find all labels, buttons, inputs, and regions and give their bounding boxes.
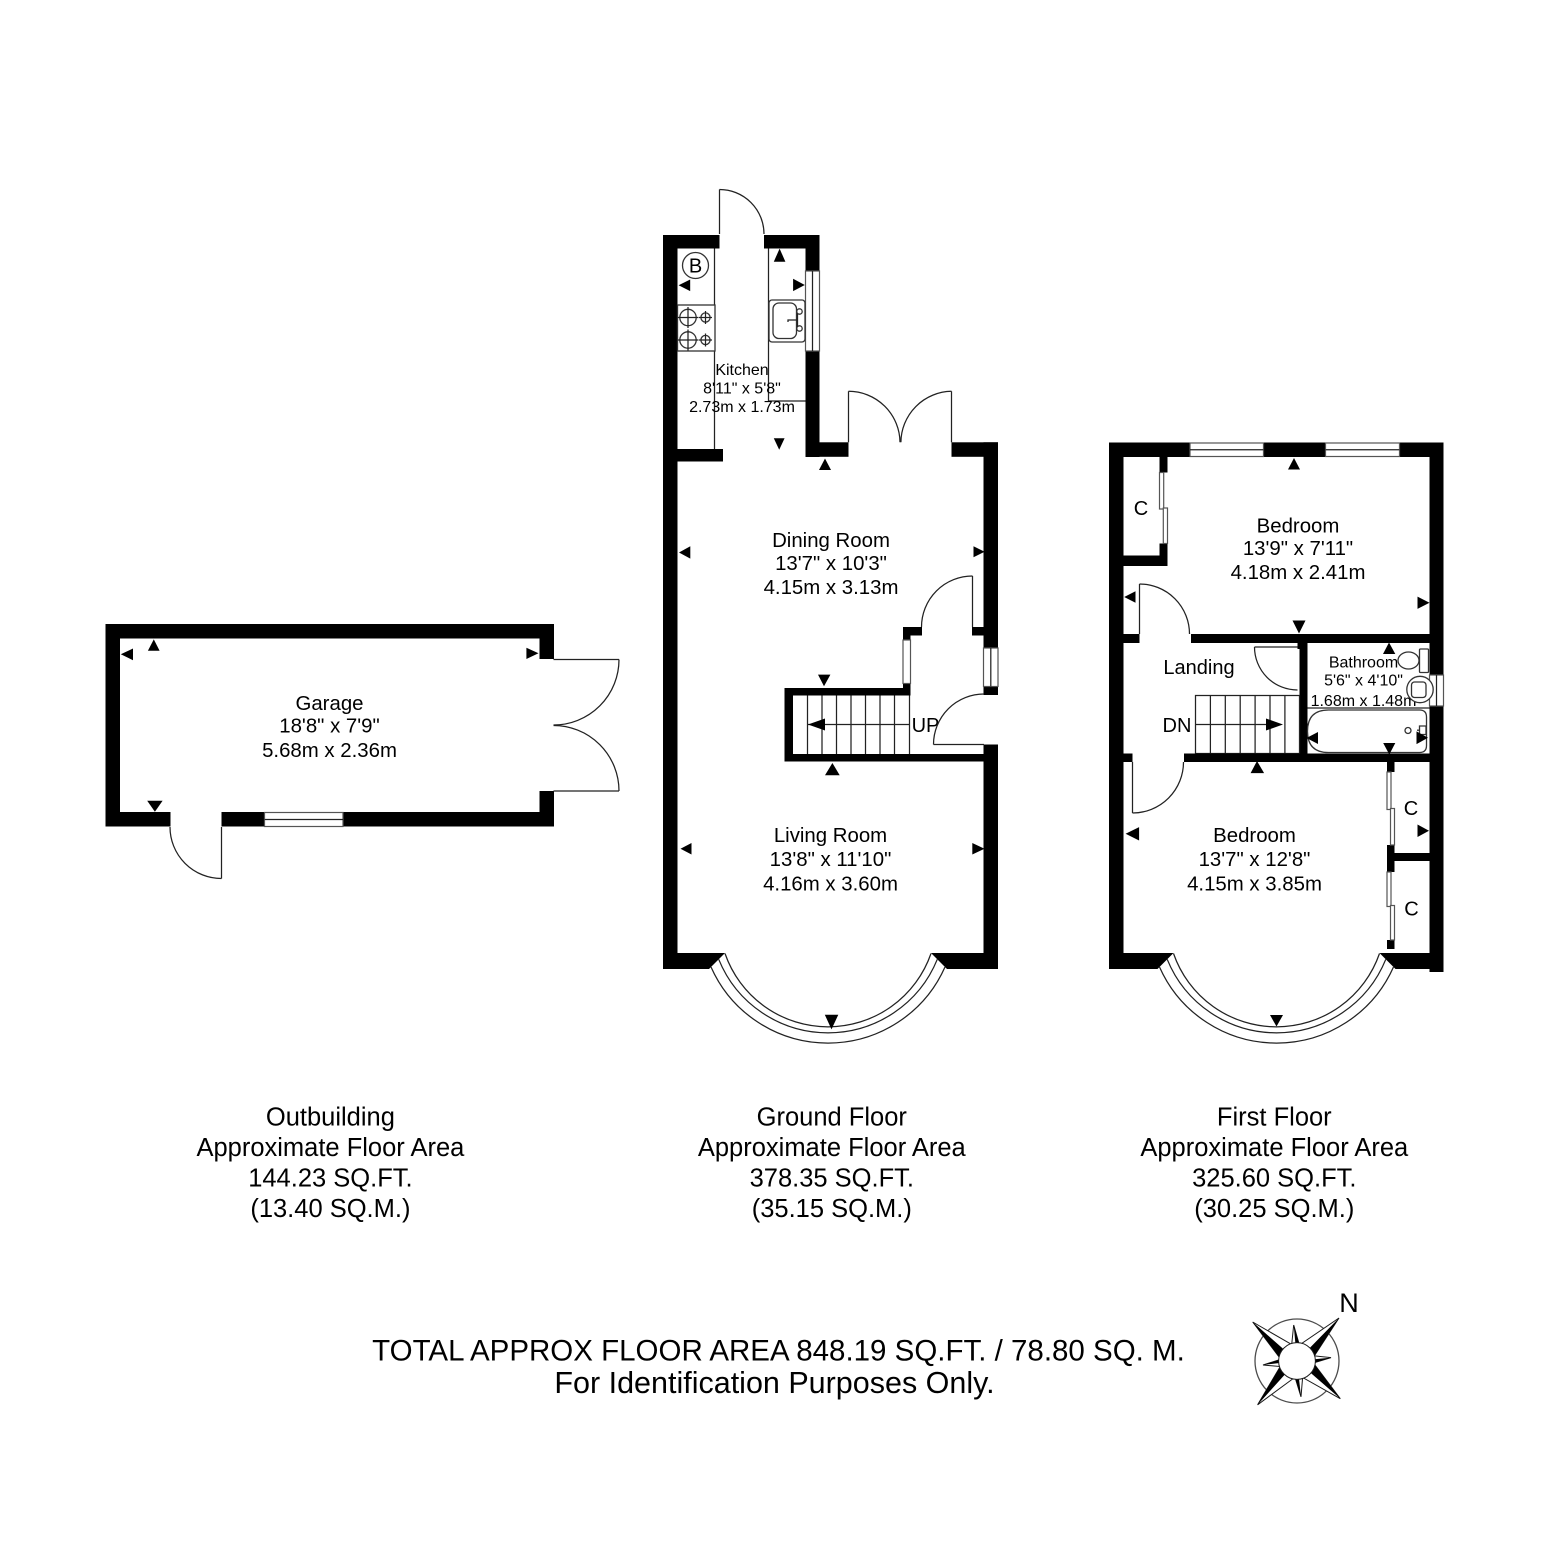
svg-text:4.18m x 2.41m: 4.18m x 2.41m (1231, 562, 1366, 584)
svg-text:325.60 SQ.FT.: 325.60 SQ.FT. (1192, 1165, 1356, 1193)
svg-text:13'7" x 12'8": 13'7" x 12'8" (1199, 849, 1311, 871)
svg-text:Outbuilding: Outbuilding (266, 1104, 395, 1132)
svg-text:Kitchen: Kitchen (715, 362, 768, 379)
svg-text:13'9" x 7'11": 13'9" x 7'11" (1243, 538, 1353, 560)
svg-text:Living Room: Living Room (774, 825, 887, 847)
svg-text:C: C (1134, 498, 1148, 520)
svg-text:N: N (1339, 1288, 1359, 1318)
svg-text:Landing: Landing (1163, 657, 1234, 679)
svg-text:For Identification Purposes On: For Identification Purposes Only. (554, 1366, 994, 1400)
svg-text:B: B (689, 256, 702, 278)
svg-text:DN: DN (1163, 715, 1192, 737)
svg-text:Ground Floor: Ground Floor (757, 1104, 908, 1132)
svg-text:8'11" x 5'8": 8'11" x 5'8" (703, 381, 781, 398)
svg-text:Approximate Floor Area: Approximate Floor Area (1140, 1134, 1409, 1162)
svg-text:TOTAL APPROX FLOOR AREA 848.19: TOTAL APPROX FLOOR AREA 848.19 SQ.FT. / … (372, 1335, 1185, 1368)
svg-text:UP: UP (912, 715, 940, 737)
svg-text:(30.25 SQ.M.): (30.25 SQ.M.) (1194, 1195, 1354, 1223)
svg-text:4.15m x 3.13m: 4.15m x 3.13m (764, 577, 899, 599)
svg-text:C: C (1404, 798, 1418, 820)
svg-text:Approximate Floor Area: Approximate Floor Area (196, 1134, 465, 1162)
svg-text:Bedroom: Bedroom (1213, 825, 1296, 847)
svg-text:C: C (1404, 899, 1418, 921)
svg-text:4.15m x 3.85m: 4.15m x 3.85m (1187, 874, 1322, 896)
svg-text:144.23 SQ.FT.: 144.23 SQ.FT. (248, 1165, 412, 1193)
svg-text:Bedroom: Bedroom (1257, 516, 1340, 538)
svg-text:378.35 SQ.FT.: 378.35 SQ.FT. (750, 1165, 914, 1193)
svg-text:2.73m x 1.73m: 2.73m x 1.73m (689, 399, 795, 416)
svg-text:(35.15 SQ.M.): (35.15 SQ.M.) (752, 1195, 912, 1223)
svg-text:(13.40 SQ.M.): (13.40 SQ.M.) (250, 1195, 410, 1223)
svg-text:5'6" x 4'10": 5'6" x 4'10" (1324, 673, 1403, 690)
svg-text:Approximate Floor Area: Approximate Floor Area (698, 1134, 967, 1162)
svg-text:13'8" x 11'10": 13'8" x 11'10" (770, 849, 892, 871)
svg-text:18'8" x 7'9": 18'8" x 7'9" (279, 716, 380, 738)
svg-text:Bathroom: Bathroom (1329, 655, 1398, 672)
svg-text:5.68m x 2.36m: 5.68m x 2.36m (262, 740, 397, 762)
svg-text:First Floor: First Floor (1217, 1104, 1332, 1132)
svg-text:Dining Room: Dining Room (772, 530, 890, 552)
svg-text:Garage: Garage (295, 693, 363, 715)
svg-text:4.16m x 3.60m: 4.16m x 3.60m (763, 874, 898, 896)
svg-text:13'7" x 10'3": 13'7" x 10'3" (775, 553, 887, 575)
